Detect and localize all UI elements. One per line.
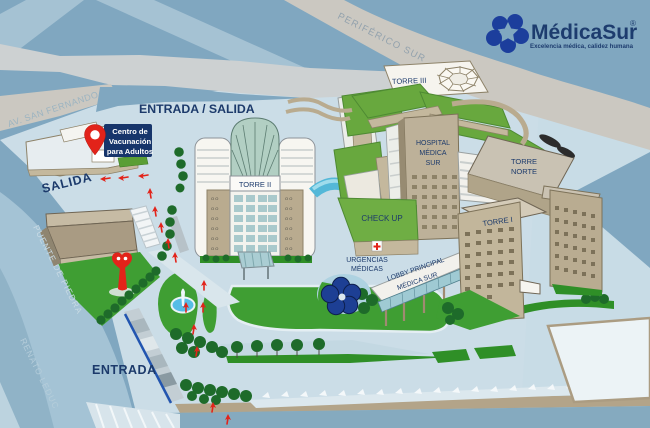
svg-text:O O: O O xyxy=(211,226,218,231)
svg-text:O O: O O xyxy=(285,216,292,221)
svg-text:ENTRADA / SALIDA: ENTRADA / SALIDA xyxy=(139,102,255,116)
svg-text:O O: O O xyxy=(211,206,218,211)
svg-text:O O: O O xyxy=(285,236,292,241)
svg-text:HOSPITAL: HOSPITAL xyxy=(416,140,450,147)
svg-text:URGENCIAS: URGENCIAS xyxy=(346,257,388,264)
svg-text:CHECK UP: CHECK UP xyxy=(361,214,402,223)
svg-text:ENTRADA: ENTRADA xyxy=(92,363,157,377)
svg-text:TORRE II: TORRE II xyxy=(239,180,271,189)
svg-text:®: ® xyxy=(630,19,636,28)
svg-text:O O: O O xyxy=(211,236,218,241)
svg-text:O O: O O xyxy=(211,216,218,221)
svg-text:O O: O O xyxy=(211,246,218,251)
svg-text:Centro de: Centro de xyxy=(112,127,147,136)
svg-text:TORRE III: TORRE III xyxy=(392,76,427,86)
svg-text:MÉDICAS: MÉDICAS xyxy=(351,264,383,273)
svg-text:MÉDICA: MÉDICA xyxy=(419,148,447,157)
svg-text:O O: O O xyxy=(285,196,292,201)
svg-text:Vacunación: Vacunación xyxy=(109,137,152,146)
svg-text:O O: O O xyxy=(285,246,292,251)
svg-text:O O: O O xyxy=(211,196,218,201)
svg-text:Excelencia médica, calidez hum: Excelencia médica, calidez humana xyxy=(530,43,634,50)
svg-text:SUR: SUR xyxy=(426,160,441,167)
svg-text:MédicaSur: MédicaSur xyxy=(531,21,637,44)
svg-text:O O: O O xyxy=(285,226,292,231)
svg-text:TORRE: TORRE xyxy=(511,157,537,166)
svg-text:para Adultos: para Adultos xyxy=(107,147,153,156)
svg-text:O O: O O xyxy=(285,206,292,211)
svg-text:NORTE: NORTE xyxy=(511,167,537,176)
